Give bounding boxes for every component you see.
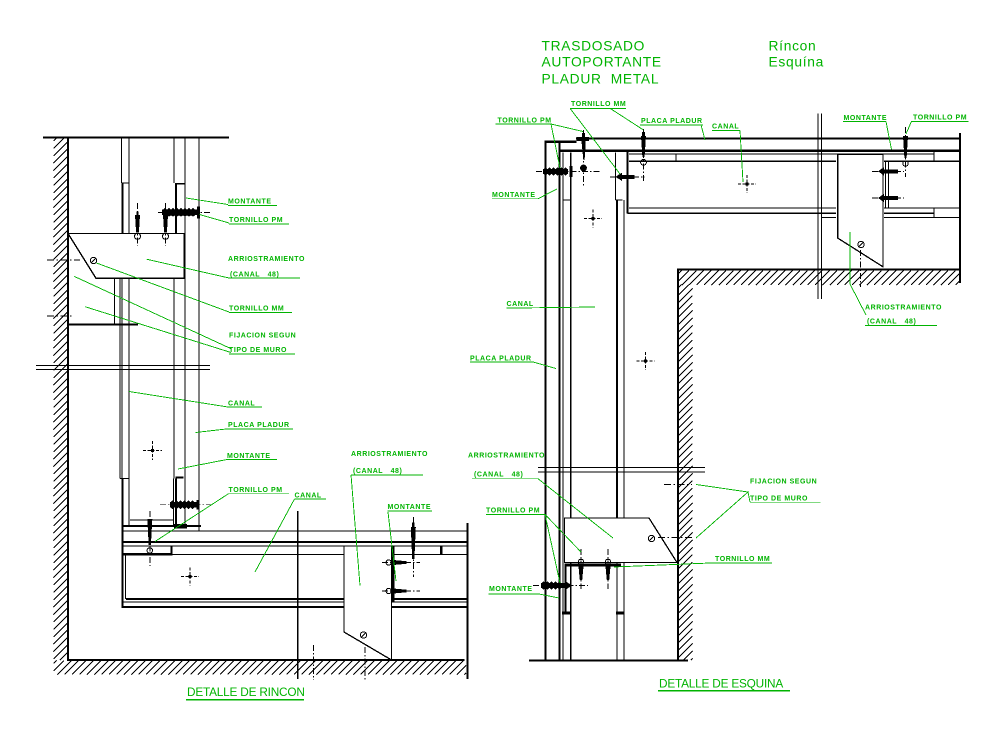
svg-text:ARRIOSTRAMIENTO: ARRIOSTRAMIENTO: [865, 305, 942, 312]
svg-text:MONTANTE: MONTANTE: [228, 198, 272, 205]
svg-text:(CANAL 48): (CANAL 48): [474, 472, 523, 479]
svg-text:Esquína: Esquína: [769, 55, 825, 70]
svg-text:ARRIOSTRAMIENTO: ARRIOSTRAMIENTO: [351, 451, 428, 458]
svg-text:ARRIOSTRAMIENTO: ARRIOSTRAMIENTO: [468, 452, 545, 459]
svg-text:FIJACION SEGUN: FIJACION SEGUN: [750, 478, 817, 485]
svg-text:CANAL: CANAL: [712, 124, 739, 131]
svg-text:DETALLE DE ESQUINA: DETALLE DE ESQUINA: [659, 676, 783, 690]
svg-text:MONTANTE: MONTANTE: [489, 586, 533, 593]
svg-text:TIPO DE MURO: TIPO DE MURO: [750, 495, 808, 502]
svg-text:MONTANTE: MONTANTE: [227, 453, 271, 460]
svg-text:CANAL: CANAL: [295, 492, 322, 499]
svg-text:PLACA PLADUR: PLACA PLADUR: [470, 355, 532, 362]
svg-text:(CANAL 48): (CANAL 48): [867, 319, 916, 326]
svg-text:TORNILLO PM: TORNILLO PM: [913, 114, 967, 121]
svg-text:TORNILLO PM: TORNILLO PM: [229, 217, 283, 224]
svg-text:(CANAL 48): (CANAL 48): [353, 468, 402, 475]
svg-text:TRASDOSADO: TRASDOSADO: [542, 39, 646, 54]
svg-text:AUTOPORTANTE: AUTOPORTANTE: [542, 55, 662, 70]
svg-text:(CANAL 48): (CANAL 48): [230, 271, 279, 278]
svg-text:PLACA PLADUR: PLACA PLADUR: [641, 118, 703, 125]
svg-text:Ríncon: Ríncon: [769, 39, 817, 54]
svg-text:CANAL: CANAL: [228, 400, 255, 407]
svg-text:ARRIOSTRAMIENTO: ARRIOSTRAMIENTO: [228, 256, 305, 263]
svg-text:MONTANTE: MONTANTE: [388, 504, 432, 511]
svg-text:TIPO DE MURO: TIPO DE MURO: [229, 347, 287, 354]
svg-text:TORNILLO PM: TORNILLO PM: [229, 487, 283, 494]
svg-text:TORNILLO PM: TORNILLO PM: [486, 508, 540, 515]
svg-text:MONTANTE: MONTANTE: [844, 115, 888, 122]
svg-text:TORNILLO MM: TORNILLO MM: [571, 101, 626, 108]
svg-text:CANAL: CANAL: [507, 301, 534, 308]
svg-text:PLACA PLADUR: PLACA PLADUR: [228, 422, 290, 429]
svg-text:TORNILLO PM: TORNILLO PM: [498, 117, 552, 124]
svg-text:MONTANTE: MONTANTE: [492, 192, 536, 199]
svg-text:TORNILLO MM: TORNILLO MM: [229, 305, 284, 312]
svg-text:PLADUR METAL: PLADUR METAL: [542, 72, 660, 87]
svg-text:DETALLE DE RINCON: DETALLE DE RINCON: [187, 685, 305, 699]
svg-text:TORNILLO MM: TORNILLO MM: [715, 556, 770, 563]
svg-text:FIJACION SEGUN: FIJACION SEGUN: [229, 333, 296, 340]
